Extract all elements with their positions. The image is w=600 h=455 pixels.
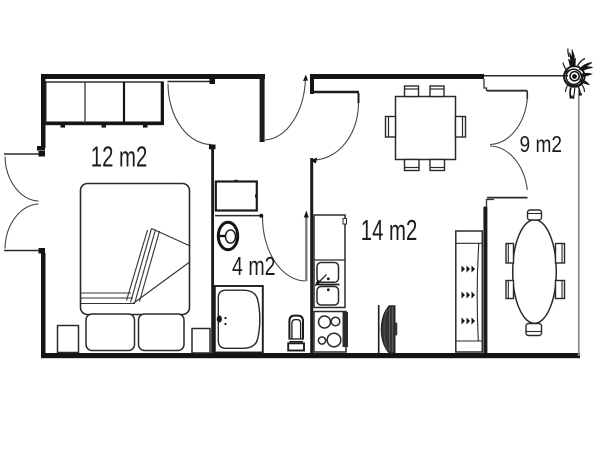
svg-text:12 m2: 12 m2 <box>91 141 148 173</box>
svg-text:9 m2: 9 m2 <box>520 131 563 157</box>
svg-text:4 m2: 4 m2 <box>232 253 276 281</box>
svg-text:14 m2: 14 m2 <box>361 215 418 247</box>
